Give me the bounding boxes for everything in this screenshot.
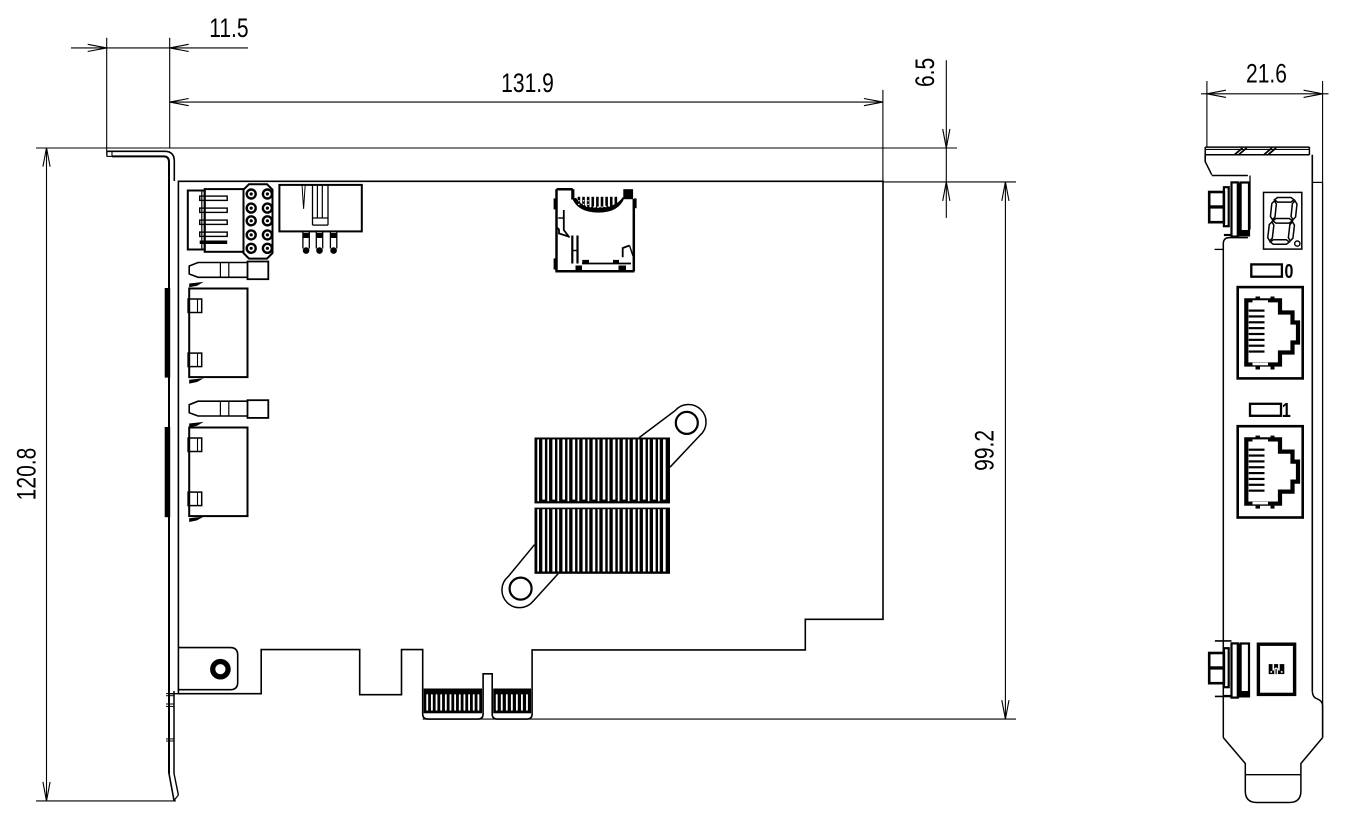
svg-text:21.6: 21.6 (1246, 59, 1287, 89)
svg-text:99.2: 99.2 (970, 430, 1000, 471)
svg-text:6.5: 6.5 (911, 58, 941, 87)
svg-text:11.5: 11.5 (209, 14, 248, 44)
svg-text:131.9: 131.9 (501, 68, 554, 98)
svg-text:1: 1 (1282, 399, 1291, 421)
svg-text:0: 0 (1284, 260, 1293, 282)
svg-text:120.8: 120.8 (12, 448, 42, 501)
